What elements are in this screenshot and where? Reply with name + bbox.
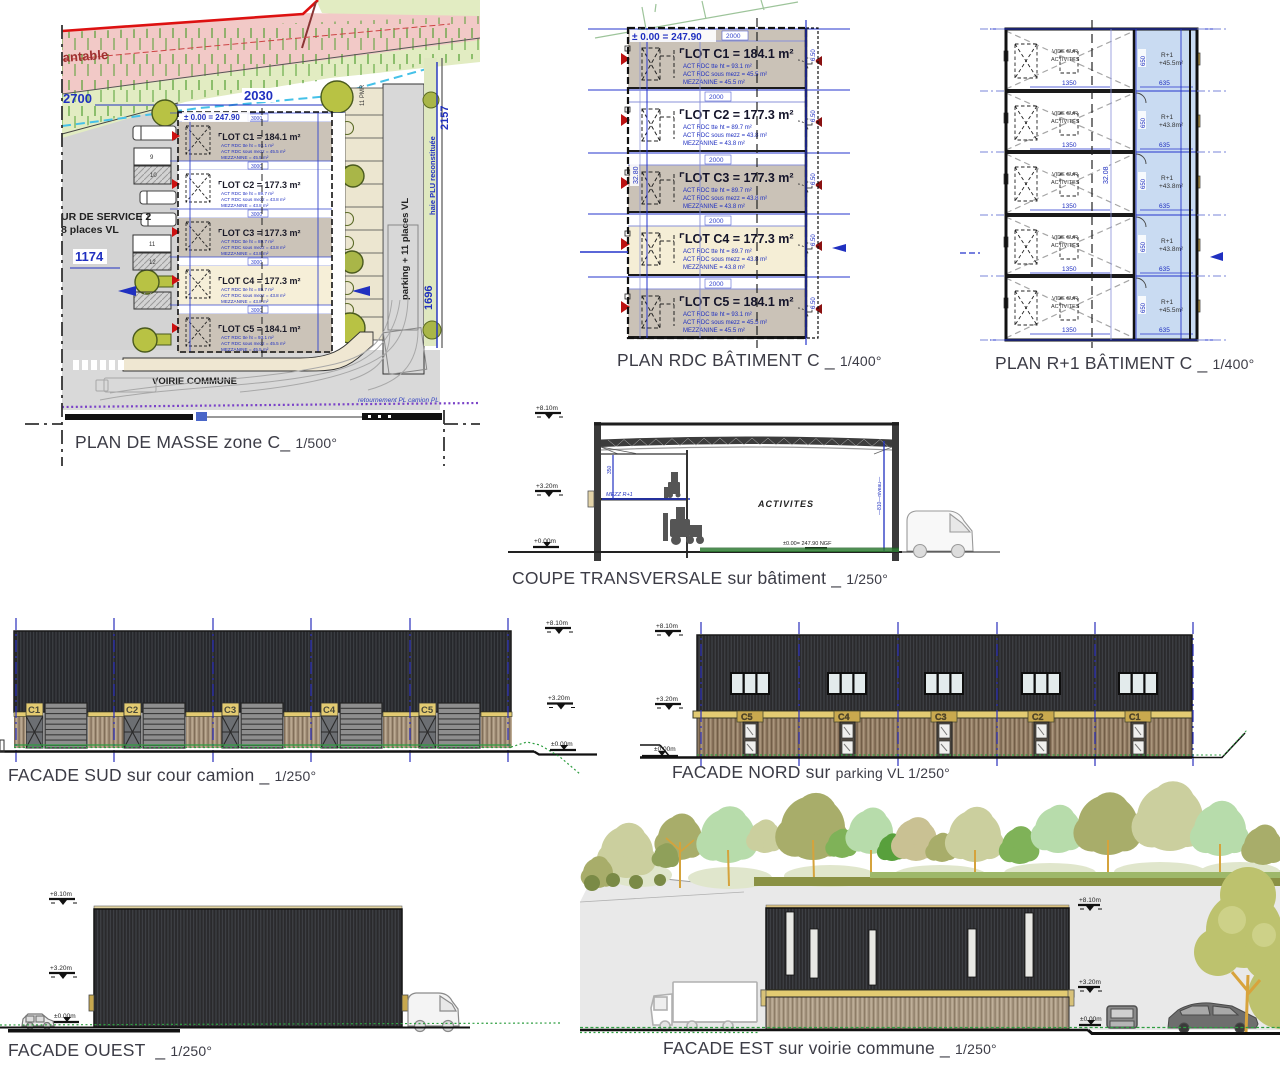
svg-text:⌜LOT C4 = 177.3 m²: ⌜LOT C4 = 177.3 m² [218,276,301,286]
svg-text:± 0.00 = 247.90: ± 0.00 = 247.90 [632,32,702,43]
svg-text:350: 350 [607,465,613,474]
svg-text:2157: 2157 [439,106,451,130]
svg-text:C2: C2 [1032,712,1044,722]
svg-text:± 0.00 = 247.90: ± 0.00 = 247.90 [184,113,240,122]
svg-text:+3.20m: +3.20m [50,965,72,972]
svg-text:⌜LOT C1 = 184.1 m²: ⌜LOT C1 = 184.1 m² [218,132,301,142]
svg-text:3000: 3000 [251,164,262,170]
svg-text:+8.10m: +8.10m [546,620,568,627]
svg-text:3000: 3000 [251,260,262,266]
svg-text:2700: 2700 [63,91,92,106]
svg-text:ACT RDC tte ht = 93.1 m²: ACT RDC tte ht = 93.1 m² [221,335,274,340]
svg-text:2000: 2000 [726,33,741,40]
svg-text:C3: C3 [935,712,947,722]
svg-text:⌜LOT C4 = 177.3 m²: ⌜LOT C4 = 177.3 m² [679,232,794,246]
svg-text:+43.8m²: +43.8m² [1159,246,1184,253]
svg-text:3000: 3000 [251,116,262,122]
svg-text:+3.20m: +3.20m [548,695,570,702]
svg-text:VIDE SUR: VIDE SUR [1052,296,1078,302]
svg-text:2000: 2000 [709,157,724,164]
svg-text:ACTIVITES: ACTIVITES [1051,304,1080,310]
svg-text:+8.10m: +8.10m [536,405,558,412]
svg-text:+45.5m²: +45.5m² [1159,307,1184,314]
svg-text:±0.00= 247.90 NGF: ±0.00= 247.90 NGF [783,541,832,547]
svg-text:ACT RDC sous mezz = 43.8 m²: ACT RDC sous mezz = 43.8 m² [221,245,286,250]
svg-text:C4: C4 [323,705,336,716]
svg-text:MEZZANINE = 43.8 m²: MEZZANINE = 43.8 m² [683,141,745,147]
svg-text:+8.10m: +8.10m [1079,897,1101,904]
svg-text:VIDE SUR: VIDE SUR [1052,111,1078,117]
svg-text:ACT RDC tte ht = 89.7 m²: ACT RDC tte ht = 89.7 m² [683,125,752,131]
svg-text:ACT RDC tte ht = 89.7 m²: ACT RDC tte ht = 89.7 m² [221,287,274,292]
svg-text:+8.10m: +8.10m [50,891,72,898]
svg-text:UR DE SERVICE 2: UR DE SERVICE 2 [61,211,151,223]
svg-text:635: 635 [1159,327,1170,334]
svg-text:C5: C5 [421,705,434,716]
svg-text:8 places VL: 8 places VL [61,224,119,236]
svg-text:ACT RDC tte ht = 89.7 m²: ACT RDC tte ht = 89.7 m² [221,191,274,196]
svg-text:3000: 3000 [251,308,262,314]
svg-text:12: 12 [149,260,156,266]
svg-text:R+1: R+1 [1161,238,1173,245]
svg-text:⌜LOT C2 = 177.3 m²: ⌜LOT C2 = 177.3 m² [679,108,794,122]
svg-text:ACT RDC sous mezz = 45.5 m²: ACT RDC sous mezz = 45.5 m² [221,149,286,154]
svg-text:ACTIVITES: ACTIVITES [1051,57,1080,63]
svg-text:650: 650 [1141,55,1147,66]
svg-text:MEZZ R+1: MEZZ R+1 [606,492,633,498]
svg-text:⌜LOT C5 = 184.1 m²: ⌜LOT C5 = 184.1 m² [218,324,301,334]
svg-text:1174: 1174 [75,249,104,264]
svg-text:11 PMR: 11 PMR [360,84,366,106]
svg-text:ACTIVITES: ACTIVITES [757,499,814,509]
svg-text:2030: 2030 [244,88,273,103]
svg-text:6.50: 6.50 [811,49,817,61]
svg-text:1350: 1350 [1062,327,1077,334]
svg-text:⌜LOT C5 = 184.1 m²: ⌜LOT C5 = 184.1 m² [679,295,794,309]
svg-text:—810—niveau—: —810—niveau— [877,477,883,515]
svg-text:+3.20m: +3.20m [1079,979,1101,986]
svg-text:MEZZANINE = 45.5 m²: MEZZANINE = 45.5 m² [683,80,745,86]
svg-text:+3.20m: +3.20m [656,696,678,703]
svg-text:6.50: 6.50 [811,297,817,309]
svg-text:635: 635 [1159,203,1170,210]
svg-text:+43.8m²: +43.8m² [1159,183,1184,190]
svg-text:C1: C1 [1129,712,1141,722]
svg-text:⌜LOT C2 = 177.3 m²: ⌜LOT C2 = 177.3 m² [218,180,301,190]
svg-text:MEZZANINE = 43.8 m²: MEZZANINE = 43.8 m² [683,204,745,210]
svg-text:C1: C1 [28,705,41,716]
svg-text:R+1: R+1 [1161,114,1173,121]
svg-text:C3: C3 [224,705,236,716]
svg-text:⌜LOT C3 = 177.3 m²: ⌜LOT C3 = 177.3 m² [679,171,794,185]
svg-text:ACT RDC tte ht = 93.1 m²: ACT RDC tte ht = 93.1 m² [683,312,752,318]
svg-text:650: 650 [1141,302,1147,313]
svg-text:32.80: 32.80 [633,166,640,184]
svg-text:1350: 1350 [1062,142,1077,149]
svg-text:antable: antable [62,47,108,65]
svg-text:ACT RDC sous mezz = 43.8 m²: ACT RDC sous mezz = 43.8 m² [683,133,767,139]
svg-text:1696: 1696 [423,286,435,310]
svg-text:635: 635 [1159,142,1170,149]
svg-text:6.50: 6.50 [811,234,817,246]
svg-text:⌜LOT C1 = 184.1 m²: ⌜LOT C1 = 184.1 m² [679,47,794,61]
svg-text:2000: 2000 [709,218,724,225]
svg-text:11: 11 [149,242,156,248]
svg-text:MEZZANINE = 45.5 m²: MEZZANINE = 45.5 m² [683,328,745,334]
svg-text:+3.20m: +3.20m [536,483,558,490]
svg-text:6.50: 6.50 [811,110,817,122]
svg-text:650: 650 [1141,117,1147,128]
svg-text:ACTIVITES: ACTIVITES [1051,243,1080,249]
svg-text:R+1: R+1 [1161,52,1173,59]
svg-text:ACT RDC sous mezz = 45.5 m²: ACT RDC sous mezz = 45.5 m² [683,320,767,326]
svg-text:650: 650 [1141,241,1147,252]
svg-text:R+1: R+1 [1161,175,1173,182]
svg-text:VIDE SUR: VIDE SUR [1052,49,1078,55]
svg-text:1350: 1350 [1062,80,1077,87]
svg-text:C2: C2 [126,705,138,716]
svg-text:ACT RDC sous mezz = 45.5 m²: ACT RDC sous mezz = 45.5 m² [221,341,286,346]
svg-text:ACT RDC sous mezz = 43.8 m²: ACT RDC sous mezz = 43.8 m² [221,293,286,298]
svg-text:+8.10m: +8.10m [656,623,678,630]
svg-text:ACT RDC tte ht = 93.1 m²: ACT RDC tte ht = 93.1 m² [221,143,274,148]
svg-text:C4: C4 [838,712,850,722]
svg-text:VIDE SUR: VIDE SUR [1052,172,1078,178]
svg-text:ACTIVITES: ACTIVITES [1051,119,1080,125]
svg-text:ACTIVITES: ACTIVITES [1051,180,1080,186]
svg-text:ACT RDC sous mezz = 43.8 m²: ACT RDC sous mezz = 43.8 m² [683,257,767,263]
svg-text:ACT RDC tte ht = 89.7 m²: ACT RDC tte ht = 89.7 m² [683,188,752,194]
svg-text:+43.8m²: +43.8m² [1159,122,1184,129]
svg-text:R+1: R+1 [1161,299,1173,306]
svg-text:parking + 11 places VL: parking + 11 places VL [400,198,411,300]
svg-text:10: 10 [150,173,157,179]
svg-text:6.50: 6.50 [811,173,817,185]
svg-text:⌜LOT C3 = 177.3 m²: ⌜LOT C3 = 177.3 m² [218,228,301,238]
svg-text:haie PLU reconstituée: haie PLU reconstituée [428,136,437,215]
svg-text:635: 635 [1159,80,1170,87]
svg-text:1350: 1350 [1062,266,1077,273]
svg-text:32.08: 32.08 [1103,166,1110,184]
svg-text:ACT RDC sous mezz = 43.8 m²: ACT RDC sous mezz = 43.8 m² [221,197,286,202]
svg-text:ACT RDC tte ht = 89.7 m²: ACT RDC tte ht = 89.7 m² [221,239,274,244]
svg-text:635: 635 [1159,266,1170,273]
svg-text:2000: 2000 [709,281,724,288]
svg-text:3000: 3000 [251,212,262,218]
svg-text:+45.5m²: +45.5m² [1159,60,1184,67]
svg-text:ACT RDC sous mezz = 43.8 m²: ACT RDC sous mezz = 43.8 m² [683,196,767,202]
svg-text:VIDE SUR: VIDE SUR [1052,235,1078,241]
svg-text:1350: 1350 [1062,203,1077,210]
svg-text:ACT RDC sous mezz = 45.5 m²: ACT RDC sous mezz = 45.5 m² [683,72,767,78]
svg-text:ACT RDC tte ht = 93.1 m²: ACT RDC tte ht = 93.1 m² [683,64,752,70]
svg-text:MEZZANINE = 43.8 m²: MEZZANINE = 43.8 m² [683,265,745,271]
svg-text:C5: C5 [741,712,753,722]
svg-text:650: 650 [1141,178,1147,189]
svg-text:ACT RDC tte ht = 89.7 m²: ACT RDC tte ht = 89.7 m² [683,249,752,255]
svg-text:2000: 2000 [709,94,724,101]
